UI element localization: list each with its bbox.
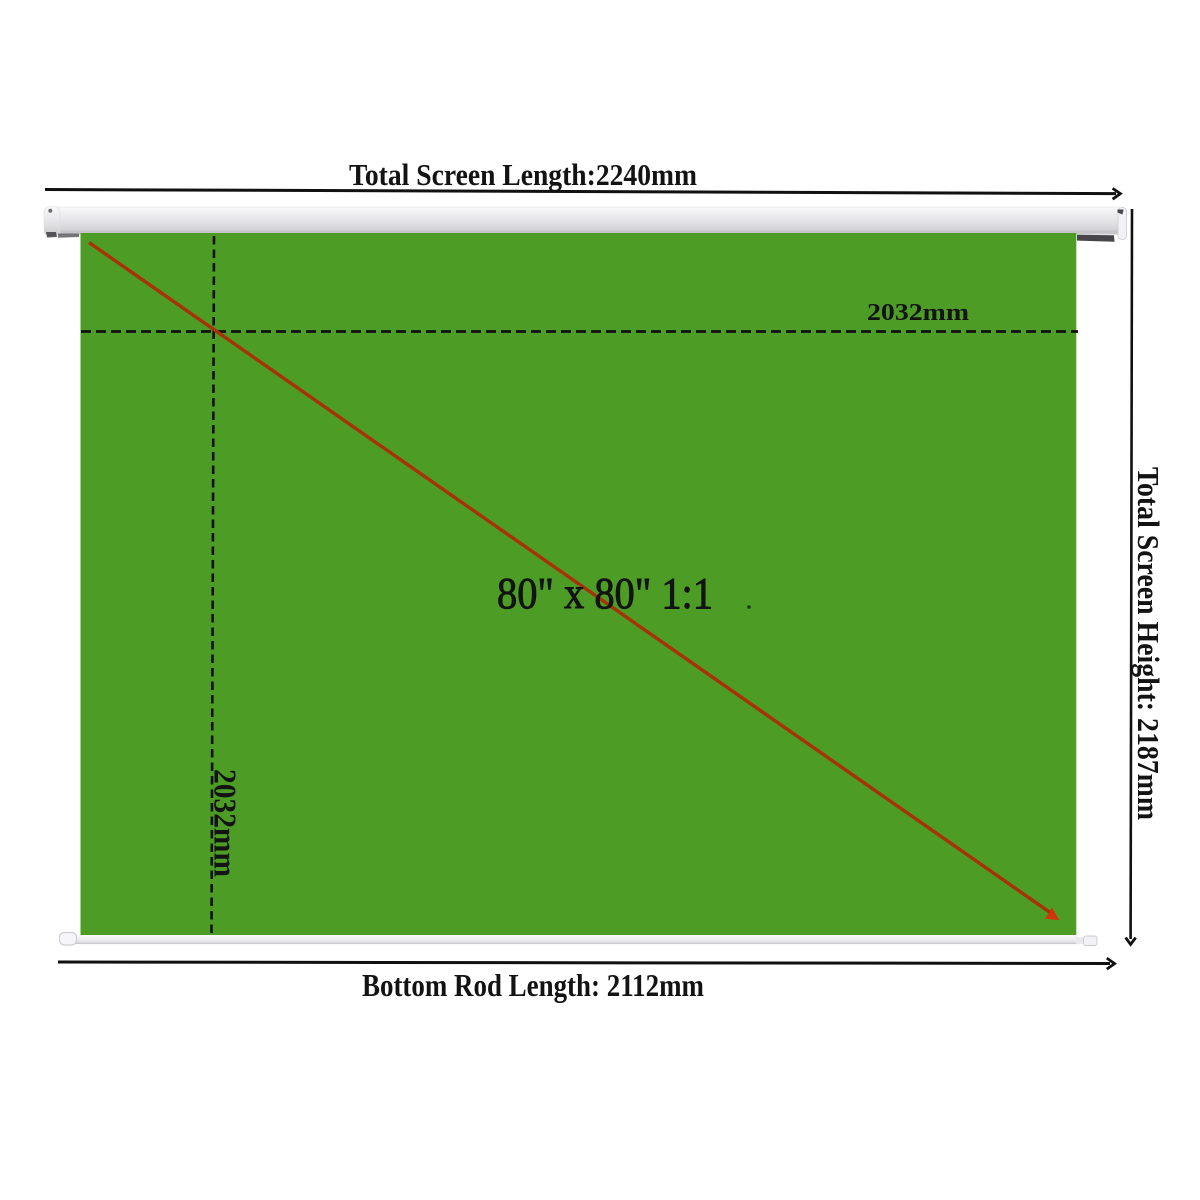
svg-text:80" x 80" 1:1: 80" x 80" 1:1: [497, 569, 713, 618]
svg-text:2032mm: 2032mm: [208, 769, 244, 877]
svg-text:2032mm: 2032mm: [867, 300, 969, 326]
svg-text:Total Screen Length:2240mm: Total Screen Length:2240mm: [349, 157, 697, 192]
svg-text:Total Screen Height: 2187mm: Total Screen Height: 2187mm: [1131, 467, 1166, 820]
svg-text:Bottom Rod Length: 2112mm: Bottom Rod Length: 2112mm: [362, 967, 704, 1003]
